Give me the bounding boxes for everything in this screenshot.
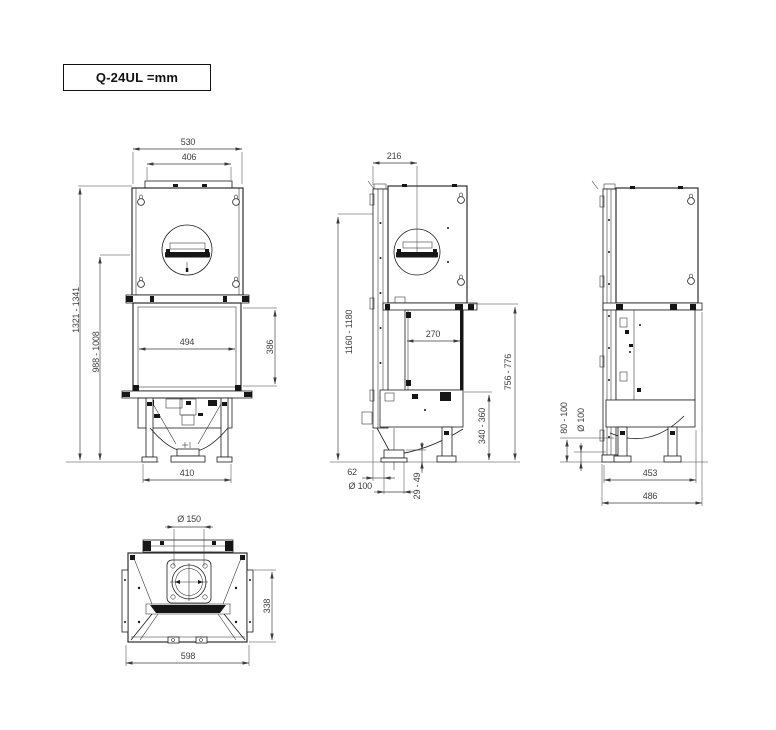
model-label-box: Q-24UL =mm (63, 64, 211, 91)
dim-feet-spacing: 410 (180, 468, 195, 478)
dim-overall-height: 1321 - 1341 (71, 287, 81, 333)
side-view-2-drawing: 80 - 100 Ø 100 453 486 (550, 140, 776, 520)
dim-flue-center-depth: 216 (387, 151, 402, 161)
dim-glass-width: 494 (180, 337, 195, 347)
glass-door (133, 303, 241, 391)
side-view-geometry (330, 181, 520, 470)
dim-top-width: 530 (181, 137, 196, 147)
dim-inlet-height-range: 80 - 100 (559, 402, 569, 434)
dim-front-frame-height: 1160 - 1180 (344, 310, 354, 355)
dim-inlet-diameter: Ø 100 (576, 408, 586, 432)
dim-feet-depth: 453 (643, 468, 658, 478)
bottom-view-drawing: Ø 150 338 598 (100, 500, 300, 685)
dim-top-plate-width: 406 (182, 152, 197, 162)
dim-firebox-top-height: 756 - 776 (503, 354, 513, 390)
dim-outlet-diameter: Ø 100 (348, 481, 372, 491)
dim-glass-depth: 270 (426, 329, 441, 339)
dim-flue-diameter: Ø 150 (177, 514, 201, 524)
front-view-drawing: 530 406 1321 - 1341 988 - 1008 494 386 4… (60, 130, 340, 500)
dim-body-depth: 338 (262, 599, 272, 614)
dim-body-width: 598 (181, 651, 196, 661)
front-view-geometry (66, 181, 252, 462)
dim-flue-center-height: 988 - 1008 (91, 331, 101, 372)
dim-outlet-stub-height: 29 - 49 (412, 472, 422, 499)
dim-glass-height: 386 (265, 340, 275, 355)
dim-clearance-height: 340 - 360 (477, 408, 487, 444)
dim-outlet-offset: 62 (347, 467, 357, 477)
bottom-view-geometry (122, 540, 253, 643)
model-label: Q-24UL =mm (96, 70, 178, 85)
technical-drawing-page: Q-24UL =mm (0, 0, 776, 730)
dim-overall-depth: 486 (643, 491, 658, 501)
side-view-drawing: 216 1160 - 1180 756 - 776 270 340 - 360 … (325, 140, 545, 510)
